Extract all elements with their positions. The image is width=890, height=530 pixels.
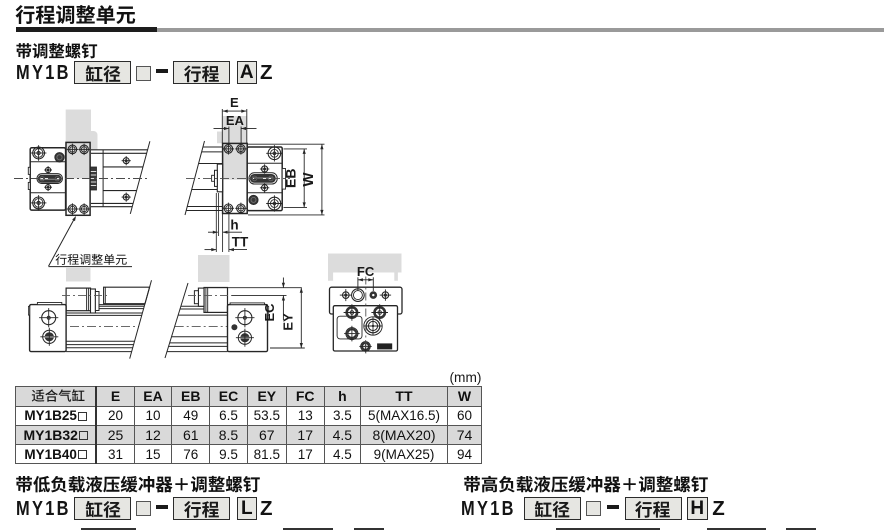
svg-text:EC: EC	[262, 303, 277, 322]
svg-text:EB: EB	[282, 168, 298, 187]
svg-text:E: E	[230, 95, 239, 110]
svg-text:FC: FC	[357, 264, 375, 279]
svg-text:h: h	[230, 218, 238, 233]
svg-text:EY: EY	[280, 313, 295, 331]
svg-text:EA: EA	[226, 113, 245, 128]
svg-text:W: W	[300, 172, 317, 187]
svg-text:TT: TT	[232, 234, 249, 249]
